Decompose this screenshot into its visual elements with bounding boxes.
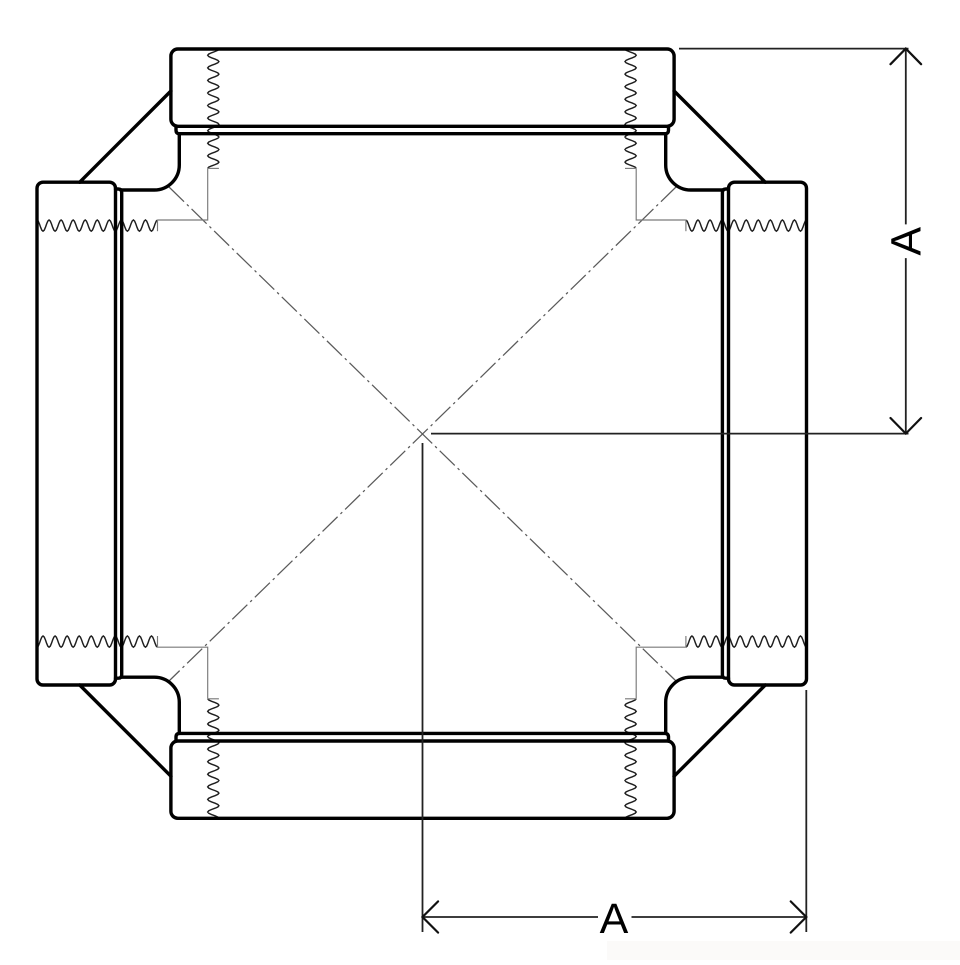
svg-text:A: A — [600, 895, 629, 943]
svg-text:A: A — [883, 227, 931, 256]
